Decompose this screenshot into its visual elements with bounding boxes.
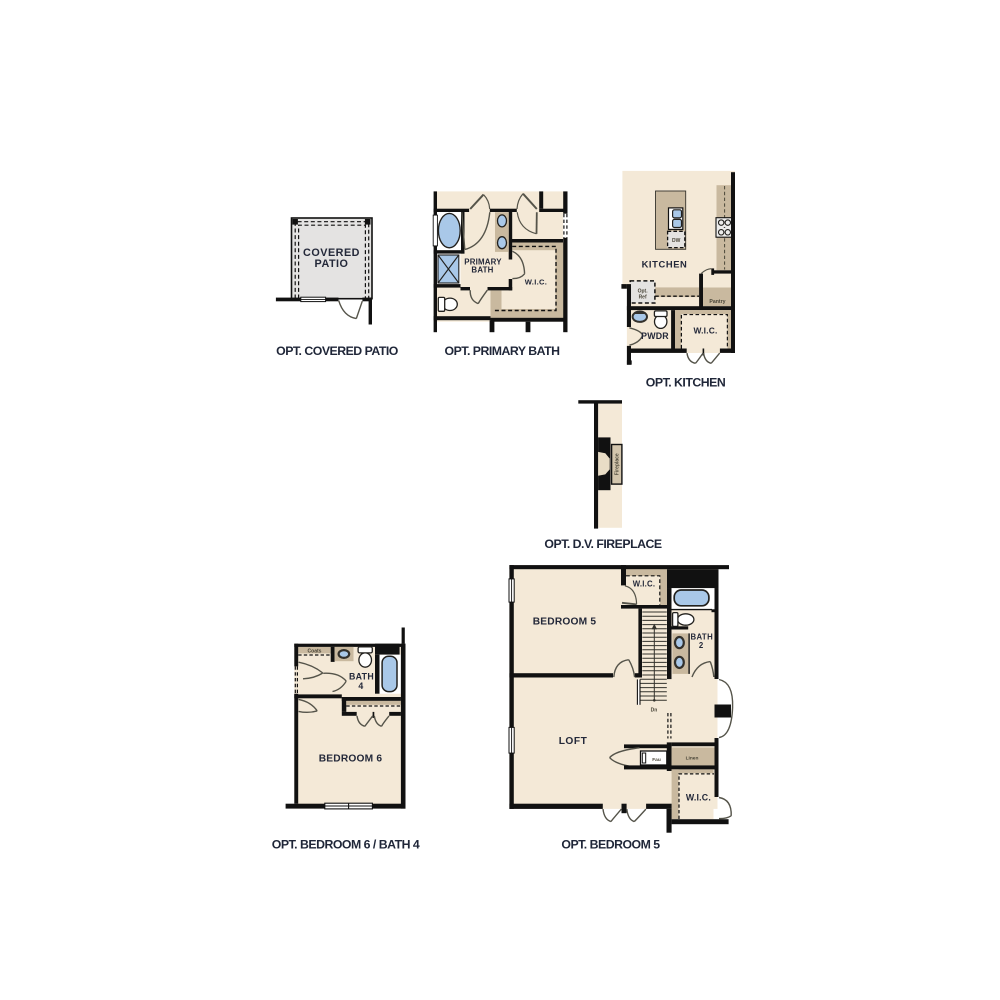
svg-text:LOFT: LOFT [559,736,588,747]
svg-text:Coats: Coats [308,649,322,655]
svg-text:Ref: Ref [639,294,647,300]
svg-text:PATIO: PATIO [315,258,349,270]
svg-text:OPT. PRIMARY BATH: OPT. PRIMARY BATH [445,344,561,358]
svg-text:OPT. KITCHEN: OPT. KITCHEN [646,376,726,390]
svg-text:OPT. COVERED PATIO: OPT. COVERED PATIO [276,344,399,358]
svg-text:OPT. D.V. FIREPLACE: OPT. D.V. FIREPLACE [544,537,661,551]
svg-text:4: 4 [358,681,363,691]
svg-text:Fau: Fau [652,757,661,763]
svg-text:BEDROOM 6: BEDROOM 6 [319,753,383,764]
svg-text:2: 2 [699,641,704,650]
svg-text:DW: DW [672,238,681,244]
svg-text:PWDR: PWDR [641,331,669,341]
svg-text:W.I.C.: W.I.C. [525,277,547,286]
svg-text:BEDROOM 5: BEDROOM 5 [533,617,597,628]
svg-text:KITCHEN: KITCHEN [642,259,688,270]
svg-text:W.I.C.: W.I.C. [694,325,718,335]
svg-text:W.I.C.: W.I.C. [633,579,655,588]
svg-text:W.I.C.: W.I.C. [686,792,711,802]
svg-text:Dn: Dn [651,708,658,714]
svg-text:Linen: Linen [686,756,699,762]
svg-text:OPT. BEDROOM 6 / BATH 4: OPT. BEDROOM 6 / BATH 4 [272,838,420,852]
svg-text:Pantry: Pantry [709,299,725,305]
svg-text:Fireplace: Fireplace [615,453,621,475]
svg-text:BATH: BATH [471,266,493,275]
svg-text:OPT. BEDROOM 5: OPT. BEDROOM 5 [561,838,660,852]
